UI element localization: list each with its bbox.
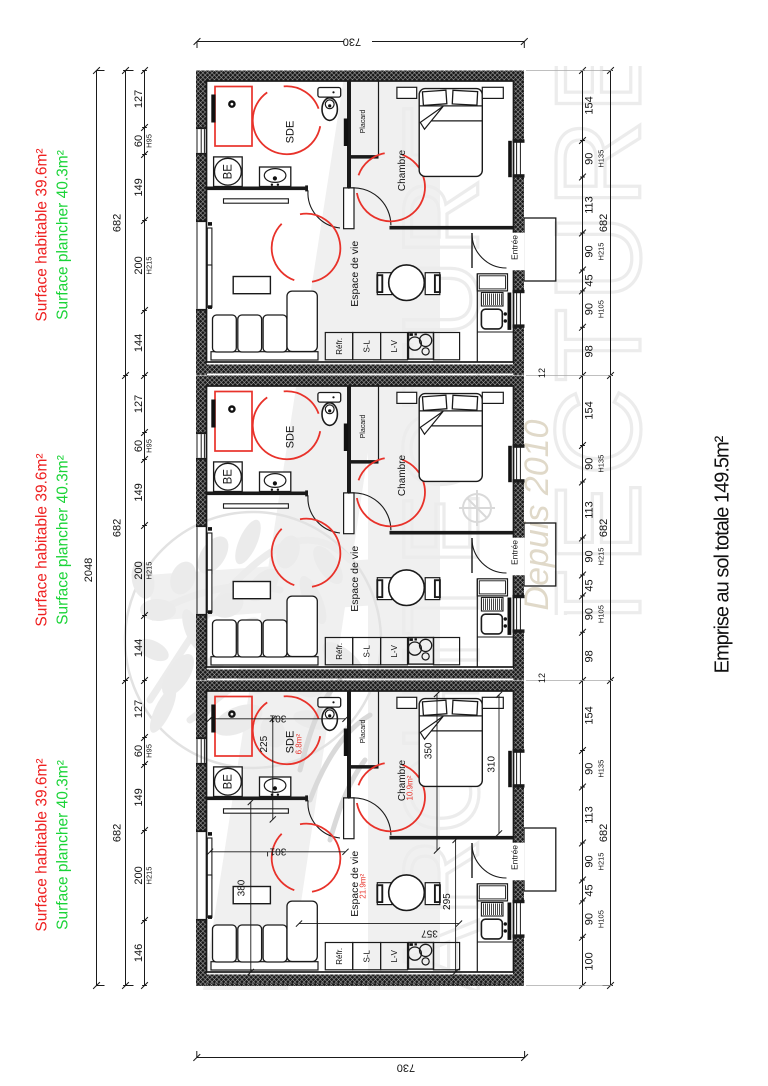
- svg-text:H215: H215: [597, 548, 606, 566]
- svg-text:154: 154: [584, 401, 596, 419]
- svg-text:12: 12: [537, 673, 547, 683]
- svg-text:H95: H95: [145, 439, 154, 453]
- svg-text:90: 90: [584, 763, 596, 775]
- svg-text:295: 295: [442, 893, 453, 910]
- svg-text:H215: H215: [597, 853, 606, 871]
- svg-text:146: 146: [133, 944, 145, 962]
- svg-text:H215: H215: [597, 243, 606, 261]
- svg-text:301: 301: [269, 846, 286, 857]
- svg-text:10.9m²: 10.9m²: [406, 775, 415, 800]
- svg-text:Surface habitable 39.6m²: Surface habitable 39.6m²: [34, 148, 51, 321]
- svg-text:90: 90: [584, 303, 596, 315]
- svg-text:113: 113: [584, 501, 596, 519]
- svg-text:H105: H105: [597, 300, 606, 318]
- svg-text:149: 149: [133, 178, 145, 196]
- svg-text:682: 682: [111, 519, 123, 537]
- svg-text:682: 682: [598, 519, 610, 537]
- svg-text:154: 154: [584, 706, 596, 724]
- svg-text:21.9m²: 21.9m²: [359, 874, 368, 899]
- svg-text:90: 90: [584, 245, 596, 257]
- svg-text:200: 200: [133, 256, 145, 274]
- svg-text:98: 98: [584, 650, 596, 662]
- svg-text:200: 200: [133, 561, 145, 579]
- svg-text:113: 113: [584, 196, 596, 214]
- svg-text:Surface habitable 39.6m²: Surface habitable 39.6m²: [34, 453, 51, 626]
- svg-text:350: 350: [424, 742, 435, 759]
- svg-text:380: 380: [237, 879, 248, 896]
- svg-text:682: 682: [598, 214, 610, 232]
- svg-text:45: 45: [584, 884, 596, 896]
- svg-text:Surface habitable 39.6m²: Surface habitable 39.6m²: [34, 758, 51, 931]
- svg-text:H135: H135: [597, 150, 606, 168]
- svg-text:Surface plancher 40.3m²: Surface plancher 40.3m²: [55, 455, 72, 625]
- svg-text:H215: H215: [145, 257, 154, 275]
- svg-text:200: 200: [133, 866, 145, 884]
- svg-text:730: 730: [343, 36, 361, 48]
- svg-text:Emprise au sol totale 149.5m²: Emprise au sol totale 149.5m²: [712, 435, 734, 673]
- svg-text:90: 90: [584, 550, 596, 562]
- svg-text:90: 90: [584, 458, 596, 470]
- svg-text:682: 682: [111, 824, 123, 842]
- svg-text:301: 301: [269, 713, 286, 724]
- svg-text:H95: H95: [145, 744, 154, 758]
- svg-text:Surface plancher 40.3m²: Surface plancher 40.3m²: [55, 760, 72, 930]
- svg-text:730: 730: [397, 1062, 415, 1074]
- svg-text:127: 127: [133, 90, 145, 108]
- svg-text:H105: H105: [597, 605, 606, 623]
- svg-text:12: 12: [537, 368, 547, 378]
- svg-text:310: 310: [487, 756, 498, 773]
- svg-text:225: 225: [259, 735, 270, 752]
- svg-text:H135: H135: [597, 760, 606, 778]
- svg-text:45: 45: [584, 274, 596, 286]
- svg-text:90: 90: [584, 855, 596, 867]
- svg-text:100: 100: [584, 952, 596, 970]
- svg-text:60: 60: [133, 135, 145, 147]
- svg-text:60: 60: [133, 440, 145, 452]
- svg-text:6.8m²: 6.8m²: [295, 734, 304, 755]
- svg-text:357: 357: [421, 928, 438, 939]
- svg-text:682: 682: [598, 824, 610, 842]
- svg-text:H215: H215: [145, 562, 154, 580]
- svg-text:144: 144: [133, 639, 145, 657]
- svg-text:H95: H95: [145, 134, 154, 148]
- svg-text:127: 127: [133, 700, 145, 718]
- svg-text:90: 90: [584, 608, 596, 620]
- svg-text:45: 45: [584, 579, 596, 591]
- svg-text:127: 127: [133, 395, 145, 413]
- svg-text:149: 149: [133, 788, 145, 806]
- svg-text:H105: H105: [597, 910, 606, 928]
- svg-text:149: 149: [133, 483, 145, 501]
- svg-text:154: 154: [584, 96, 596, 114]
- svg-text:90: 90: [584, 913, 596, 925]
- svg-text:144: 144: [133, 334, 145, 352]
- svg-text:90: 90: [584, 153, 596, 165]
- svg-text:Surface plancher 40.3m²: Surface plancher 40.3m²: [55, 150, 72, 320]
- svg-text:H215: H215: [145, 867, 154, 885]
- svg-text:2048: 2048: [83, 558, 95, 582]
- svg-text:H135: H135: [597, 455, 606, 473]
- svg-text:98: 98: [584, 345, 596, 357]
- svg-text:113: 113: [584, 806, 596, 824]
- svg-text:60: 60: [133, 745, 145, 757]
- svg-text:ARCHITECTURE: ARCHITECTURE: [380, 98, 501, 992]
- svg-text:682: 682: [111, 214, 123, 232]
